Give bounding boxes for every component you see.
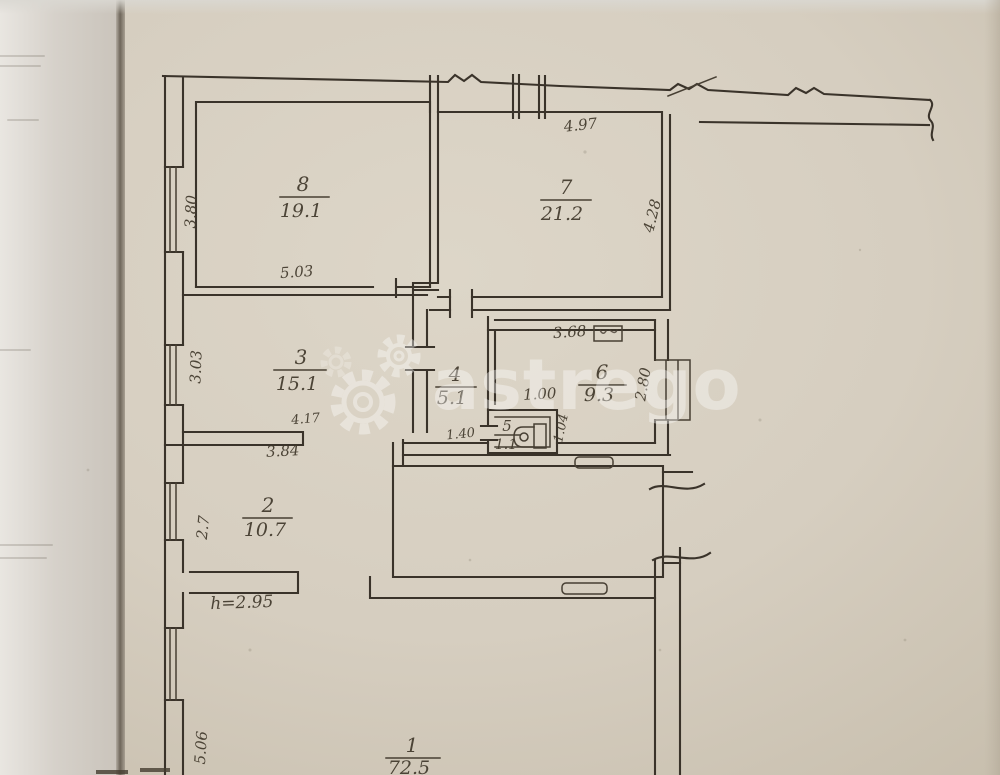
svg-text:5.06: 5.06 bbox=[191, 730, 211, 765]
svg-text:1: 1 bbox=[406, 733, 419, 757]
dim-room1-left: 5.06 bbox=[191, 730, 211, 765]
dim-room3-bottom-inner: 4.17 bbox=[290, 411, 322, 429]
svg-text:4.17: 4.17 bbox=[290, 411, 322, 429]
page-fold-shadow bbox=[116, 0, 125, 775]
svg-text:10.7: 10.7 bbox=[244, 519, 287, 541]
svg-text:3.68: 3.68 bbox=[552, 322, 587, 342]
svg-text:7: 7 bbox=[560, 175, 573, 199]
svg-text:5.03: 5.03 bbox=[279, 262, 314, 282]
svg-text:15.1: 15.1 bbox=[276, 373, 318, 395]
dim-room4-bottom: 1.40 bbox=[445, 426, 475, 444]
svg-text:3.03: 3.03 bbox=[186, 350, 205, 384]
svg-text:2: 2 bbox=[261, 493, 275, 517]
dim-room3-left: 3.03 bbox=[186, 350, 205, 384]
svg-text:72.5: 72.5 bbox=[388, 757, 430, 775]
svg-text:3.84: 3.84 bbox=[266, 441, 300, 461]
dim-room3-bottom-outer: 3.84 bbox=[266, 441, 300, 461]
svg-text:1.40: 1.40 bbox=[445, 426, 475, 444]
adjacent-page-edge bbox=[0, 0, 122, 775]
svg-text:3.80: 3.80 bbox=[181, 194, 201, 229]
dim-room8-bottom: 5.03 bbox=[279, 262, 314, 282]
svg-text:h=2.95: h=2.95 bbox=[210, 592, 274, 614]
scan-right-edge bbox=[984, 0, 1000, 775]
svg-text:21.2: 21.2 bbox=[540, 203, 583, 225]
dim-room2-left: 2.7 bbox=[193, 514, 214, 541]
scan-top-edge bbox=[0, 0, 1000, 14]
svg-text:4.97: 4.97 bbox=[562, 114, 599, 136]
watermark-text: astrego bbox=[432, 344, 742, 426]
svg-text:3: 3 bbox=[295, 345, 308, 369]
svg-text:1.1: 1.1 bbox=[495, 437, 517, 453]
svg-text:19.1: 19.1 bbox=[280, 200, 322, 222]
dim-room7-top: 4.97 bbox=[562, 114, 599, 136]
dim-room8-left: 3.80 bbox=[181, 194, 201, 229]
svg-text:2.7: 2.7 bbox=[193, 514, 214, 541]
dim-room6-top: 3.68 bbox=[552, 322, 587, 342]
ceiling-height-label: h=2.95 bbox=[210, 592, 274, 614]
floor-plan-canvas: 8 19.1 7 21.2 3 15.1 4 5.1 5 1.1 6 9.3 bbox=[0, 0, 1000, 775]
scanned-floor-plan-page: 8 19.1 7 21.2 3 15.1 4 5.1 5 1.1 6 9.3 bbox=[0, 0, 1000, 775]
svg-text:8: 8 bbox=[297, 172, 310, 196]
